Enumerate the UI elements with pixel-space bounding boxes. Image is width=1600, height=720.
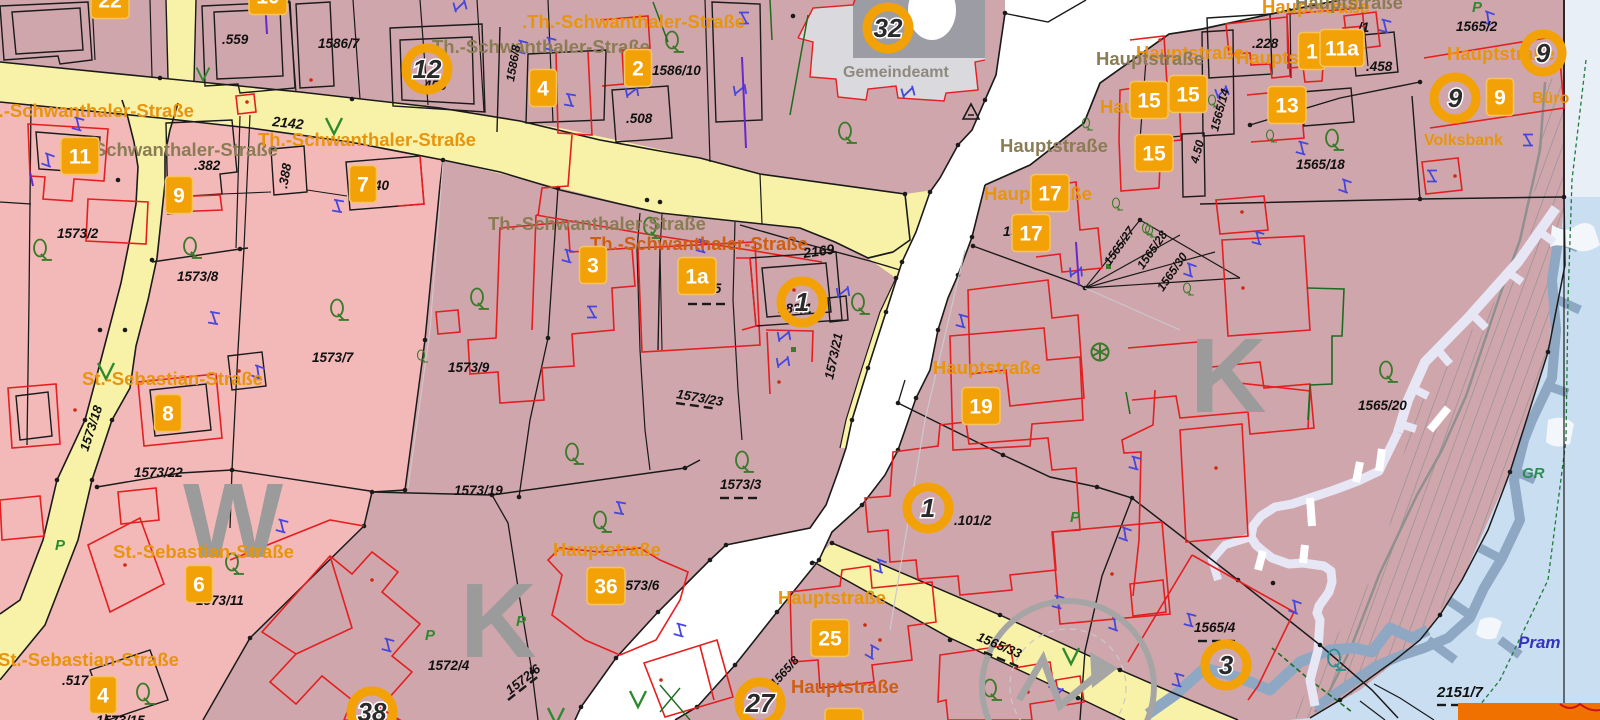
svg-text:K: K <box>460 562 537 680</box>
svg-text:.458: .458 <box>1366 59 1393 74</box>
svg-text:Hauptstraße: Hauptstraße <box>1295 0 1403 13</box>
svg-text:6: 6 <box>193 574 205 597</box>
svg-text:15: 15 <box>1176 84 1200 107</box>
svg-text:1573/7: 1573/7 <box>312 350 355 365</box>
svg-text:P: P <box>1472 0 1483 16</box>
svg-text:St.-Sebastian-Straße: St.-Sebastian-Straße <box>113 541 294 562</box>
svg-text:11a: 11a <box>1325 38 1359 61</box>
svg-text:1573/3: 1573/3 <box>720 477 762 492</box>
svg-text:1573/19: 1573/19 <box>454 483 503 498</box>
svg-text:38: 38 <box>358 697 387 720</box>
svg-text:K: K <box>1190 317 1267 435</box>
svg-text:1: 1 <box>1306 41 1318 64</box>
svg-text:9: 9 <box>1536 38 1551 68</box>
svg-text:P: P <box>425 627 436 644</box>
svg-text:1: 1 <box>921 493 935 523</box>
svg-text:GR: GR <box>1522 465 1545 482</box>
svg-text:17: 17 <box>1038 183 1061 206</box>
svg-text:3: 3 <box>1219 650 1234 680</box>
svg-text:P: P <box>1070 509 1081 526</box>
svg-text:P: P <box>55 537 66 554</box>
svg-text:1572/4: 1572/4 <box>428 658 470 673</box>
svg-text:9: 9 <box>1494 87 1506 110</box>
svg-text:2: 2 <box>632 58 644 81</box>
svg-text:36: 36 <box>594 576 617 599</box>
svg-text:1565/4: 1565/4 <box>1194 620 1236 635</box>
svg-text:1573/8: 1573/8 <box>177 269 219 284</box>
svg-text:Pram: Pram <box>1518 633 1561 652</box>
svg-text:Th.-Schwanthaler-Straße: Th.-Schwanthaler-Straße <box>0 100 194 121</box>
svg-text:32: 32 <box>874 13 903 43</box>
svg-text:12: 12 <box>413 54 442 84</box>
svg-text:Gemeindeamt: Gemeindeamt <box>843 64 949 81</box>
svg-text:1: 1 <box>795 287 809 317</box>
svg-text:Th.-Schwanthaler-Straße: Th.-Schwanthaler-Straße <box>432 36 650 57</box>
svg-text:9: 9 <box>173 185 185 208</box>
svg-text:4: 4 <box>537 78 549 101</box>
svg-text:.508: .508 <box>626 111 653 126</box>
svg-text:1565/18: 1565/18 <box>1296 157 1345 172</box>
svg-text:2151/7: 2151/7 <box>1436 684 1484 701</box>
svg-text:1573/9: 1573/9 <box>448 360 490 375</box>
svg-text:W: W <box>183 462 283 580</box>
svg-text:.517: .517 <box>62 673 90 688</box>
svg-text:1a: 1a <box>685 266 709 289</box>
svg-text:Hauptstraße: Hauptstraße <box>553 539 661 560</box>
svg-text:1586/10: 1586/10 <box>652 63 701 78</box>
svg-text:25: 25 <box>818 628 842 651</box>
svg-text:27: 27 <box>832 717 855 720</box>
svg-text:1573/22: 1573/22 <box>134 465 183 480</box>
svg-text:7: 7 <box>357 174 369 197</box>
svg-text:Th.-Schwanthaler-Straße: Th.-Schwanthaler-Straße <box>258 129 476 150</box>
svg-text:Hauptstraße: Hauptstraße <box>933 357 1041 378</box>
svg-text:.382: .382 <box>194 158 221 173</box>
svg-text:10: 10 <box>256 0 279 9</box>
svg-text:13: 13 <box>1275 95 1298 118</box>
svg-text:17: 17 <box>1019 223 1042 246</box>
svg-text:15: 15 <box>1137 90 1161 113</box>
svg-text:Volksbank: Volksbank <box>1424 132 1503 149</box>
svg-text:Th.-Schwanthaler-Straße: Th.-Schwanthaler-Straße <box>590 233 808 254</box>
svg-text:.Th.-Schwanthaler-Straße: .Th.-Schwanthaler-Straße <box>522 11 745 32</box>
svg-text:Hauptstraße: Hauptstraße <box>778 587 886 608</box>
svg-text:8: 8 <box>162 403 174 426</box>
svg-text:.559: .559 <box>222 32 249 47</box>
svg-text:Hauptstraße: Hauptstraße <box>791 676 899 697</box>
svg-text:1565/20: 1565/20 <box>1358 398 1407 413</box>
svg-text:27: 27 <box>745 688 776 718</box>
svg-text:Th.-Schwanthaler-Straße: Th.-Schwanthaler-Straße <box>488 213 706 234</box>
svg-text:11: 11 <box>69 146 92 169</box>
svg-text:.101/2: .101/2 <box>954 513 992 528</box>
svg-text:Hauptstraße: Hauptstraße <box>1096 48 1204 69</box>
svg-text:15: 15 <box>1142 143 1166 166</box>
svg-text:22: 22 <box>98 0 121 13</box>
svg-text:St.-Sebastian-Straße: St.-Sebastian-Straße <box>0 649 179 670</box>
svg-text:4: 4 <box>97 685 109 708</box>
svg-text:3: 3 <box>587 255 599 278</box>
svg-text:Hauptstraße: Hauptstraße <box>1000 135 1108 156</box>
svg-text:2142: 2142 <box>271 113 305 132</box>
svg-text:Büro: Büro <box>1532 90 1570 107</box>
svg-text:1586/7: 1586/7 <box>318 36 361 51</box>
svg-text:1573/2: 1573/2 <box>57 226 99 241</box>
svg-text:St.-Sebastian-Straße: St.-Sebastian-Straße <box>82 368 263 389</box>
svg-text:9: 9 <box>1448 83 1463 113</box>
svg-text:1565/2: 1565/2 <box>1456 19 1498 34</box>
svg-text:.228: .228 <box>1252 36 1279 51</box>
svg-text:19: 19 <box>969 396 992 419</box>
